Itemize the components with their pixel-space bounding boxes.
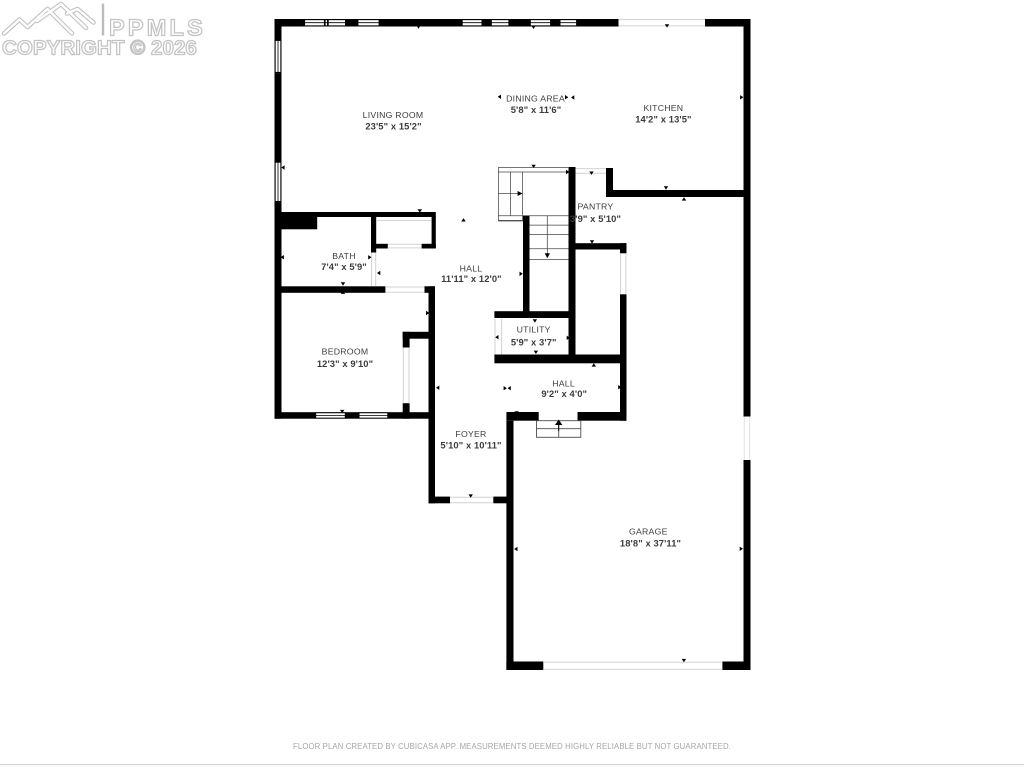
- svg-text:23'5" x 15'2": 23'5" x 15'2": [365, 120, 421, 131]
- svg-text:11'11" x 12'0": 11'11" x 12'0": [441, 273, 502, 284]
- svg-text:FOYER: FOYER: [455, 429, 486, 439]
- svg-text:KITCHEN: KITCHEN: [643, 103, 683, 113]
- svg-text:5'8" x 11'6": 5'8" x 11'6": [511, 104, 562, 115]
- svg-text:UTILITY: UTILITY: [517, 325, 551, 335]
- svg-text:5'10" x 10'11": 5'10" x 10'11": [440, 440, 501, 451]
- svg-text:BATH: BATH: [332, 251, 356, 261]
- svg-text:18'8" x 37'11": 18'8" x 37'11": [620, 537, 681, 548]
- svg-text:5'9" x 3'7": 5'9" x 3'7": [511, 337, 557, 348]
- svg-text:HALL: HALL: [460, 263, 483, 273]
- svg-text:12'3" x 9'10": 12'3" x 9'10": [317, 358, 373, 369]
- svg-text:3'9" x 5'10": 3'9" x 5'10": [570, 213, 621, 224]
- svg-text:DINING AREA: DINING AREA: [506, 93, 565, 103]
- svg-text:9'2" x 4'0": 9'2" x 4'0": [541, 388, 587, 399]
- svg-text:14'2" x 13'5": 14'2" x 13'5": [635, 114, 691, 125]
- svg-text:7'4" x 5'9": 7'4" x 5'9": [321, 261, 367, 272]
- svg-text:LIVING ROOM: LIVING ROOM: [363, 110, 424, 120]
- svg-text:PANTRY: PANTRY: [578, 202, 614, 212]
- svg-text:GARAGE: GARAGE: [629, 527, 668, 537]
- svg-text:BEDROOM: BEDROOM: [322, 346, 369, 356]
- svg-text:COPYRIGHT © 2026: COPYRIGHT © 2026: [2, 37, 197, 60]
- svg-text:FLOOR PLAN CREATED BY CUBICASA: FLOOR PLAN CREATED BY CUBICASA APP. MEAS…: [293, 742, 731, 751]
